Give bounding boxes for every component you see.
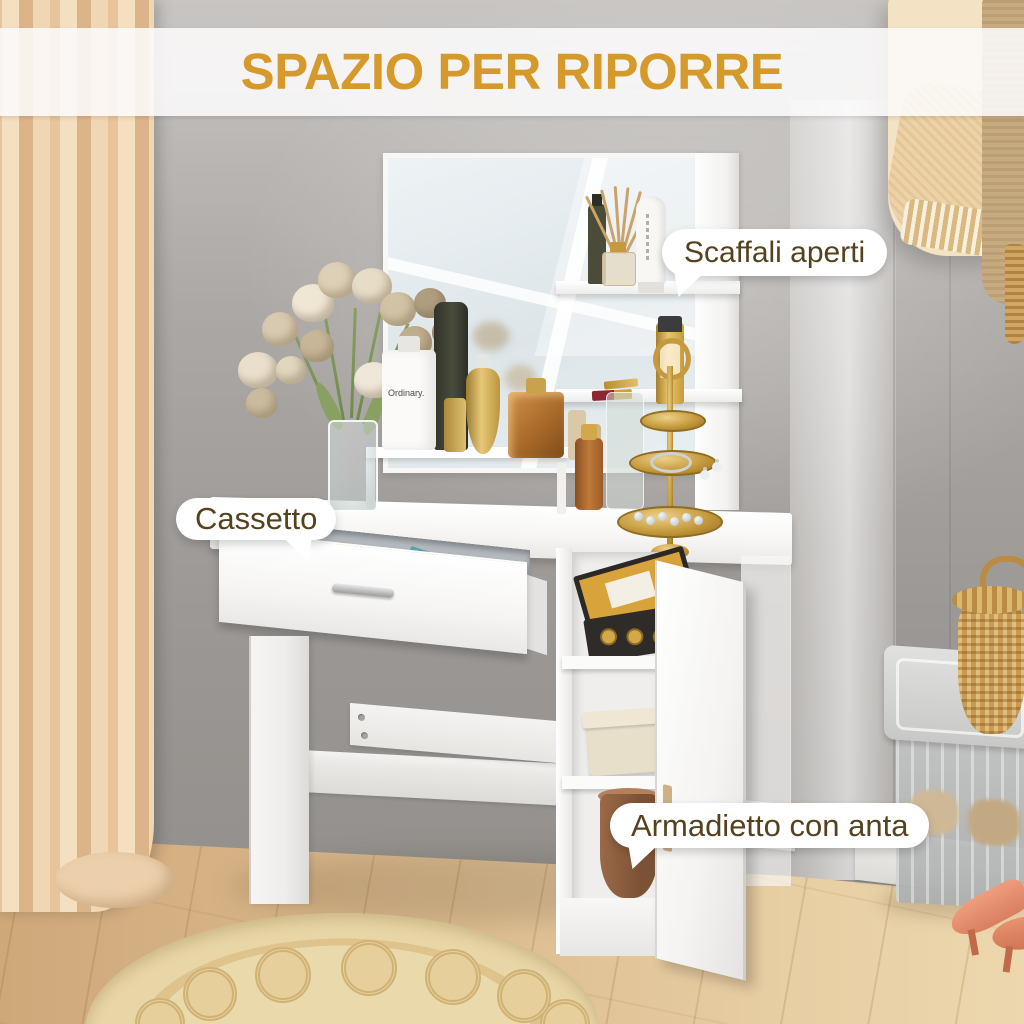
curtain-pool <box>55 852 175 908</box>
drawer-side-panel <box>527 575 547 655</box>
watch <box>599 627 618 646</box>
pearl-bead <box>682 513 691 522</box>
rug-rosette <box>425 949 481 1005</box>
flower <box>300 330 334 362</box>
clear-bottle <box>606 392 644 510</box>
white-bottle-label: Ordinary. <box>388 388 430 398</box>
wall-corner <box>790 100 896 880</box>
jewelry-stand-top-tray <box>640 410 706 432</box>
hanging-woven-pouch <box>1005 244 1024 344</box>
flower <box>246 388 278 418</box>
shoes-inside-trunk <box>968 798 1020 847</box>
product-image: Ordinary. <box>0 0 1024 1024</box>
pearl-earring <box>712 462 722 472</box>
callout-label: Armadietto con anta <box>631 808 908 844</box>
silver-bracelet <box>650 452 692 473</box>
pearl-bead <box>646 516 655 525</box>
cosmetic-tube <box>636 196 666 284</box>
pearl-bead <box>658 512 667 521</box>
callout-label: Cassetto <box>195 501 317 537</box>
reed-diffuser-jar <box>602 252 636 286</box>
cabinet-plinth <box>560 898 668 956</box>
page-title: SPAZIO PER RIPORRE <box>0 28 1024 116</box>
cabinet-left-panel <box>556 548 572 954</box>
pearl-bead <box>670 517 679 526</box>
callout-drawer: Cassetto <box>176 498 336 540</box>
rug-rosette <box>135 998 185 1024</box>
riser-leg <box>557 462 566 514</box>
flower <box>318 262 356 298</box>
callout-cabinet: Armadietto con anta <box>610 803 929 848</box>
title-banner: SPAZIO PER RIPORRE <box>0 28 1024 116</box>
watch-box-card <box>605 571 656 609</box>
flower <box>276 356 306 384</box>
cosmetic-tube-text <box>646 214 649 260</box>
cabinet-shelf <box>562 776 666 789</box>
pearl-bead <box>634 512 643 521</box>
rug-rosette <box>497 969 551 1023</box>
pearl-bead <box>694 516 703 525</box>
amber-serum-bottle <box>575 438 603 510</box>
screw <box>361 732 368 740</box>
hairspray-cap <box>658 316 682 332</box>
amber-serum-cap <box>581 424 597 440</box>
cosmetic-tube-cap <box>638 282 664 293</box>
rattan-basket <box>958 598 1024 734</box>
callout-shelves: Scaffali aperti <box>662 229 887 276</box>
small-gold-bottle <box>444 398 466 452</box>
rug-rosette <box>255 947 311 1003</box>
rug-rosette <box>341 940 397 996</box>
rug-rosette <box>183 967 237 1021</box>
flower <box>238 352 278 388</box>
glass-vase <box>328 420 378 512</box>
rattan-basket-rim <box>952 586 1024 614</box>
amber-perfume-cap <box>526 378 546 394</box>
callout-label: Scaffali aperti <box>684 236 865 270</box>
open-shelf-middle <box>556 389 742 402</box>
pearl-earring <box>700 470 710 480</box>
watch <box>625 627 644 646</box>
linen-storage-box <box>586 708 658 777</box>
cabinet-open-door <box>655 560 746 981</box>
cabinet-shelf <box>562 656 666 669</box>
flower <box>262 312 298 346</box>
table-leg <box>249 636 309 904</box>
white-serum-bottle: Ordinary. <box>382 350 436 450</box>
flower <box>380 292 416 326</box>
curtain <box>0 0 154 912</box>
screw <box>358 714 365 722</box>
white-bottle-cap <box>398 336 420 352</box>
amber-perfume-bottle <box>508 392 564 458</box>
